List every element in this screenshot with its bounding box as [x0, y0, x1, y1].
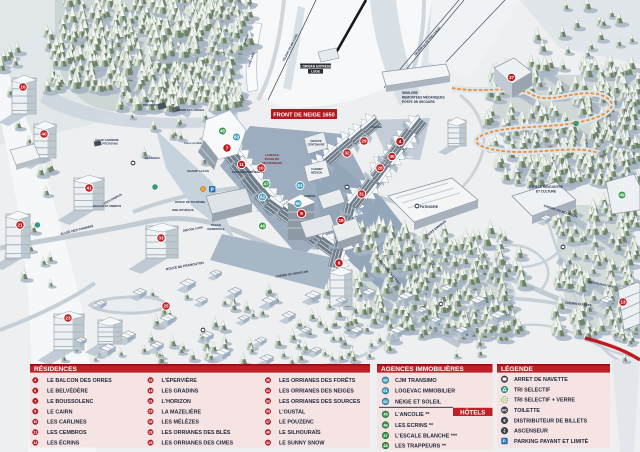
svg-text:61: 61	[383, 388, 388, 393]
svg-text:13: 13	[33, 441, 37, 445]
svg-text:19: 19	[149, 389, 153, 393]
svg-text:32: 32	[266, 399, 270, 403]
svg-text:SALLE DE: SALLE DE	[339, 229, 352, 233]
svg-text:LOGEVAC IMMOBILIER: LOGEVAC IMMOBILIER	[395, 389, 455, 395]
svg-text:CINÉMA: CINÉMA	[304, 193, 316, 198]
svg-text:LE POUZENC: LE POUZENC	[279, 420, 314, 426]
svg-text:LES ORRIANES DES FORÊTS: LES ORRIANES DES FORÊTS	[279, 376, 356, 384]
svg-text:LE BOUSSOLENC: LE BOUSSOLENC	[47, 399, 94, 405]
svg-text:49: 49	[619, 193, 625, 198]
svg-text:TRI SELECTIF: TRI SELECTIF	[514, 387, 551, 393]
svg-text:ESPACE RENCONTRE: ESPACE RENCONTRE	[529, 185, 563, 189]
svg-text:FRONT DE NEIGE 1650: FRONT DE NEIGE 1650	[273, 112, 335, 118]
svg-text:LE CAIRN: LE CAIRN	[47, 409, 73, 415]
svg-text:LES PITCHOUNS: LES PITCHOUNS	[96, 142, 118, 146]
svg-text:POSTE DE SECOURS: POSTE DE SECOURS	[402, 100, 435, 104]
svg-text:29: 29	[149, 441, 153, 445]
svg-text:41: 41	[86, 186, 92, 191]
svg-text:6: 6	[34, 389, 36, 393]
svg-text:LES CEMBROS: LES CEMBROS	[47, 430, 87, 436]
svg-text:41: 41	[266, 441, 270, 445]
svg-text:30: 30	[389, 154, 395, 159]
svg-text:SEMLORE: SEMLORE	[402, 91, 418, 95]
svg-text:€: €	[503, 418, 506, 423]
svg-text:61: 61	[297, 183, 303, 188]
svg-text:CJM TRANSIMO: CJM TRANSIMO	[395, 378, 437, 384]
svg-text:9: 9	[34, 410, 36, 414]
svg-text:63: 63	[234, 135, 240, 140]
svg-text:LE SILHOURAÏS: LE SILHOURAÏS	[279, 429, 321, 436]
svg-text:CHAMP LACAS: CHAMP LACAS	[187, 169, 209, 173]
svg-text:19: 19	[338, 218, 344, 223]
svg-text:LAVERIE: LAVERIE	[370, 125, 382, 129]
svg-text:13: 13	[620, 300, 626, 305]
svg-text:TRI SELECTIF + VERRE: TRI SELECTIF + VERRE	[514, 398, 575, 404]
svg-text:16: 16	[149, 379, 153, 383]
svg-text:LES ORRIANES DES NEIGES: LES ORRIANES DES NEIGES	[279, 389, 354, 395]
svg-text:21: 21	[17, 223, 23, 228]
svg-text:23: 23	[65, 316, 71, 321]
svg-text:23: 23	[149, 410, 153, 414]
svg-text:60: 60	[383, 378, 388, 383]
svg-text:LES ECRINS **: LES ECRINS **	[395, 423, 434, 429]
svg-text:CEDRE: CEDRE	[399, 159, 409, 163]
svg-text:10: 10	[258, 166, 264, 171]
svg-text:L'ESCALE BLANCHE ***: L'ESCALE BLANCHE ***	[395, 433, 458, 439]
svg-text:10: 10	[33, 420, 37, 424]
svg-text:LES ORRIANES DES CIMES: LES ORRIANES DES CIMES	[162, 441, 234, 447]
svg-text:HALTE GARDERIE: HALTE GARDERIE	[95, 138, 119, 142]
svg-text:OFFICE DE TOURISME: OFFICE DE TOURISME	[175, 200, 206, 204]
svg-text:25: 25	[163, 304, 169, 309]
svg-text:LES MÉLÈZES: LES MÉLÈZES	[162, 418, 200, 426]
svg-text:31: 31	[266, 389, 270, 393]
svg-text:L'OUSTAL: L'OUSTAL	[279, 409, 306, 415]
svg-text:33: 33	[158, 236, 164, 241]
svg-text:CABINET: CABINET	[311, 167, 323, 171]
svg-text:LE BELVÉDÈRE: LE BELVÉDÈRE	[47, 387, 88, 395]
svg-text:11: 11	[33, 431, 37, 435]
svg-text:33: 33	[266, 410, 270, 414]
svg-text:46: 46	[260, 224, 266, 229]
svg-text:WC: WC	[502, 408, 508, 412]
svg-text:4: 4	[34, 379, 36, 383]
svg-text:LE SUNNY SNOW: LE SUNNY SNOW	[279, 441, 325, 447]
svg-text:P.: P.	[503, 439, 507, 444]
svg-text:47: 47	[263, 182, 269, 187]
svg-text:GROUPE: GROUPE	[310, 139, 322, 143]
svg-text:AGENCES IMMOBILIÈRES: AGENCES IMMOBILIÈRES	[381, 364, 464, 373]
svg-text:ET CULTURE: ET CULTURE	[536, 190, 556, 194]
svg-text:L'ANCOLIE **: L'ANCOLIE **	[395, 412, 430, 418]
svg-text:16: 16	[20, 85, 26, 90]
svg-text:40: 40	[41, 132, 47, 137]
svg-text:11: 11	[239, 162, 244, 167]
svg-text:PATINOIRE: PATINOIRE	[420, 205, 439, 209]
svg-text:RÉSIDENCES: RÉSIDENCES	[34, 364, 77, 373]
svg-text:62: 62	[260, 195, 266, 200]
svg-text:48: 48	[383, 443, 388, 448]
svg-text:CENTENAIRE: CENTENAIRE	[308, 143, 325, 147]
svg-text:SKI FRANÇAIS: SKI FRANÇAIS	[262, 161, 282, 165]
svg-text:LES CARLINES: LES CARLINES	[47, 420, 87, 426]
svg-text:MUNICIPALE: MUNICIPALE	[207, 227, 224, 231]
svg-text:VILLAGEO: VILLAGEO	[144, 156, 160, 160]
svg-text:28: 28	[377, 166, 383, 171]
svg-text:REMONTÉES MÉCANIQUES: REMONTÉES MÉCANIQUES	[402, 95, 445, 100]
svg-text:4: 4	[399, 139, 402, 144]
svg-text:47: 47	[383, 433, 388, 438]
svg-text:LÉGENDE: LÉGENDE	[501, 364, 533, 373]
svg-text:BIBLIOTHÈQUE: BIBLIOTHÈQUE	[172, 207, 193, 212]
svg-text:LA MAZELIÈRE: LA MAZELIÈRE	[162, 407, 202, 415]
svg-text:TOILETTE: TOILETTE	[514, 408, 540, 414]
svg-text:PARKING PAYANT ET LIMITÉ: PARKING PAYANT ET LIMITÉ	[514, 437, 589, 445]
svg-text:37: 37	[266, 420, 270, 424]
svg-text:BALCON ET EMBRUN: BALCON ET EMBRUN	[93, 204, 121, 208]
svg-text:LUGE: LUGE	[311, 70, 320, 74]
svg-text:45: 45	[383, 412, 388, 417]
svg-text:21: 21	[149, 399, 153, 403]
svg-text:HÔTELS: HÔTELS	[460, 408, 485, 416]
svg-text:LES ÉCRINS: LES ÉCRINS	[47, 439, 80, 447]
svg-text:28: 28	[149, 431, 153, 435]
svg-text:L'ÉPERVIÈRE: L'ÉPERVIÈRE	[162, 376, 198, 384]
svg-text:L'ORRIAN EXPRESS: L'ORRIAN EXPRESS	[300, 65, 331, 69]
svg-text:9: 9	[300, 211, 303, 216]
svg-text:JARDIN DES NEIGES: JARDIN DES NEIGES	[176, 108, 204, 112]
svg-text:31: 31	[359, 192, 365, 197]
svg-text:30: 30	[266, 379, 270, 383]
svg-text:DISTRIBUTEUR DE BILLETS: DISTRIBUTEUR DE BILLETS	[514, 418, 587, 424]
svg-text:6: 6	[338, 261, 341, 266]
svg-text:60: 60	[295, 201, 301, 206]
svg-text:7: 7	[34, 399, 36, 403]
svg-text:ARRET DE NAVETTE: ARRET DE NAVETTE	[514, 377, 568, 383]
svg-text:LES TRAPPEURS **: LES TRAPPEURS **	[395, 444, 447, 450]
svg-text:LE BALCON DES ORRES: LE BALCON DES ORRES	[47, 378, 112, 384]
svg-text:40: 40	[266, 431, 270, 435]
svg-text:PIOU PIOU: PIOU PIOU	[143, 103, 157, 107]
svg-text:LES ORRIANES DES BLÉS: LES ORRIANES DES BLÉS	[162, 428, 231, 436]
svg-text:37: 37	[509, 75, 515, 80]
svg-text:Place du Midi: Place du Midi	[184, 141, 202, 145]
svg-text:25: 25	[149, 420, 153, 424]
svg-text:LES GRADINS: LES GRADINS	[162, 389, 199, 395]
svg-text:LES ORRIANES DES SOURCES: LES ORRIANES DES SOURCES	[279, 399, 361, 405]
svg-text:46: 46	[383, 422, 388, 427]
svg-text:32: 32	[344, 151, 350, 156]
svg-text:45: 45	[220, 129, 226, 134]
svg-text:ASCENSEUR: ASCENSEUR	[514, 429, 548, 435]
svg-text:7: 7	[226, 146, 229, 151]
svg-text:29: 29	[361, 139, 367, 144]
svg-text:L'HORIZON: L'HORIZON	[162, 399, 192, 405]
svg-text:62: 62	[383, 399, 388, 404]
svg-text:NEIGE ET SOLEIL: NEIGE ET SOLEIL	[395, 399, 442, 405]
